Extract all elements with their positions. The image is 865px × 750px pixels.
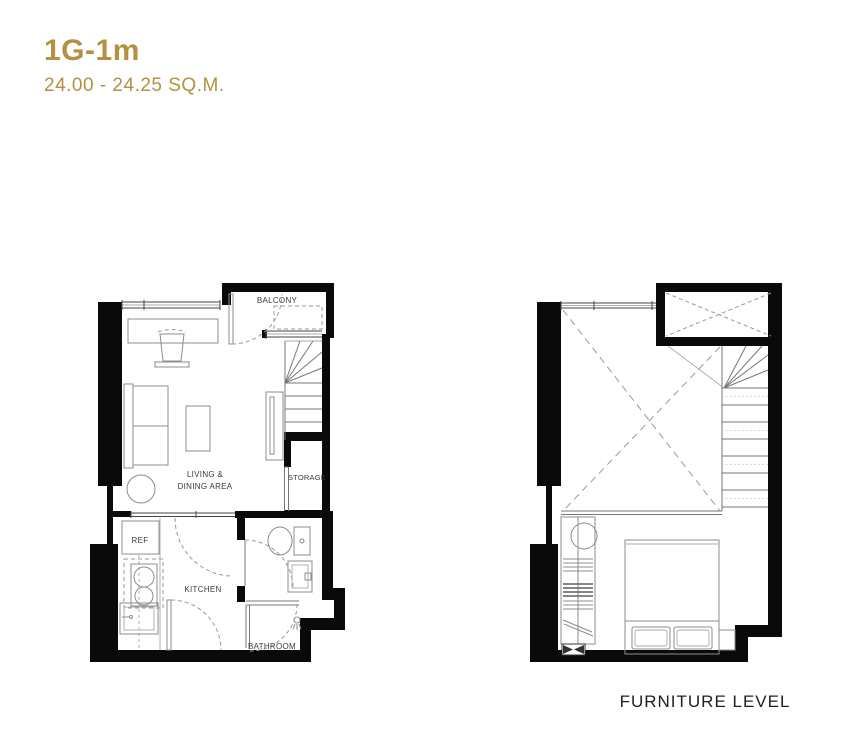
floorplan-page: 1G-1m 24.00 - 24.25 SQ.M.: [0, 0, 865, 750]
wardrobe-shelves: [563, 559, 593, 609]
furniture-level-plan: FURNITURE LEVEL: [530, 283, 790, 711]
kitchen-label: KITCHEN: [184, 585, 221, 594]
wall-vent-marker: [562, 644, 585, 655]
balcony-cross: [666, 293, 771, 336]
main-level-plan: BALCONY STORAGE LIVING & DINING AREA REF…: [90, 283, 345, 662]
stool: [571, 523, 597, 549]
loft-window: [561, 301, 656, 310]
pillow: [674, 627, 712, 649]
furniture-level-caption: FURNITURE LEVEL: [620, 692, 791, 711]
living-dining-label-line1: LIVING &: [187, 470, 224, 479]
living-dining-label-line2: DINING AREA: [178, 482, 233, 491]
coffee-table: [186, 406, 210, 451]
balcony-label: BALCONY: [257, 296, 298, 305]
living-window: [122, 300, 220, 310]
stairs-main-level: [285, 341, 322, 440]
desk: [128, 319, 218, 343]
pillow: [632, 627, 670, 649]
sofa: [124, 384, 168, 468]
side-table: [127, 475, 155, 503]
desk-chair: [155, 330, 189, 368]
nightstand: [719, 630, 735, 650]
balcony-window: [266, 329, 322, 339]
stove: [124, 559, 163, 608]
bed: [625, 540, 719, 654]
loft-edge: [561, 511, 722, 515]
storage-label: STORAGE: [288, 473, 326, 482]
ac-unit-dashed: [274, 306, 322, 329]
floorplan-graphic: BALCONY STORAGE LIVING & DINING AREA REF…: [0, 0, 865, 750]
stairs-furniture-level: [668, 346, 768, 511]
toilet: [268, 527, 310, 555]
kitchen-door-swing: [175, 518, 233, 576]
kitchen-divider-window: [131, 511, 235, 518]
wardrobe: [561, 517, 597, 644]
bathroom-label: BATHROOM: [248, 642, 296, 651]
tall-cabinet: [266, 392, 283, 460]
entry-door-swing: [171, 600, 221, 650]
ref-label: REF: [132, 536, 149, 545]
entry-door-leaf: [167, 600, 171, 650]
